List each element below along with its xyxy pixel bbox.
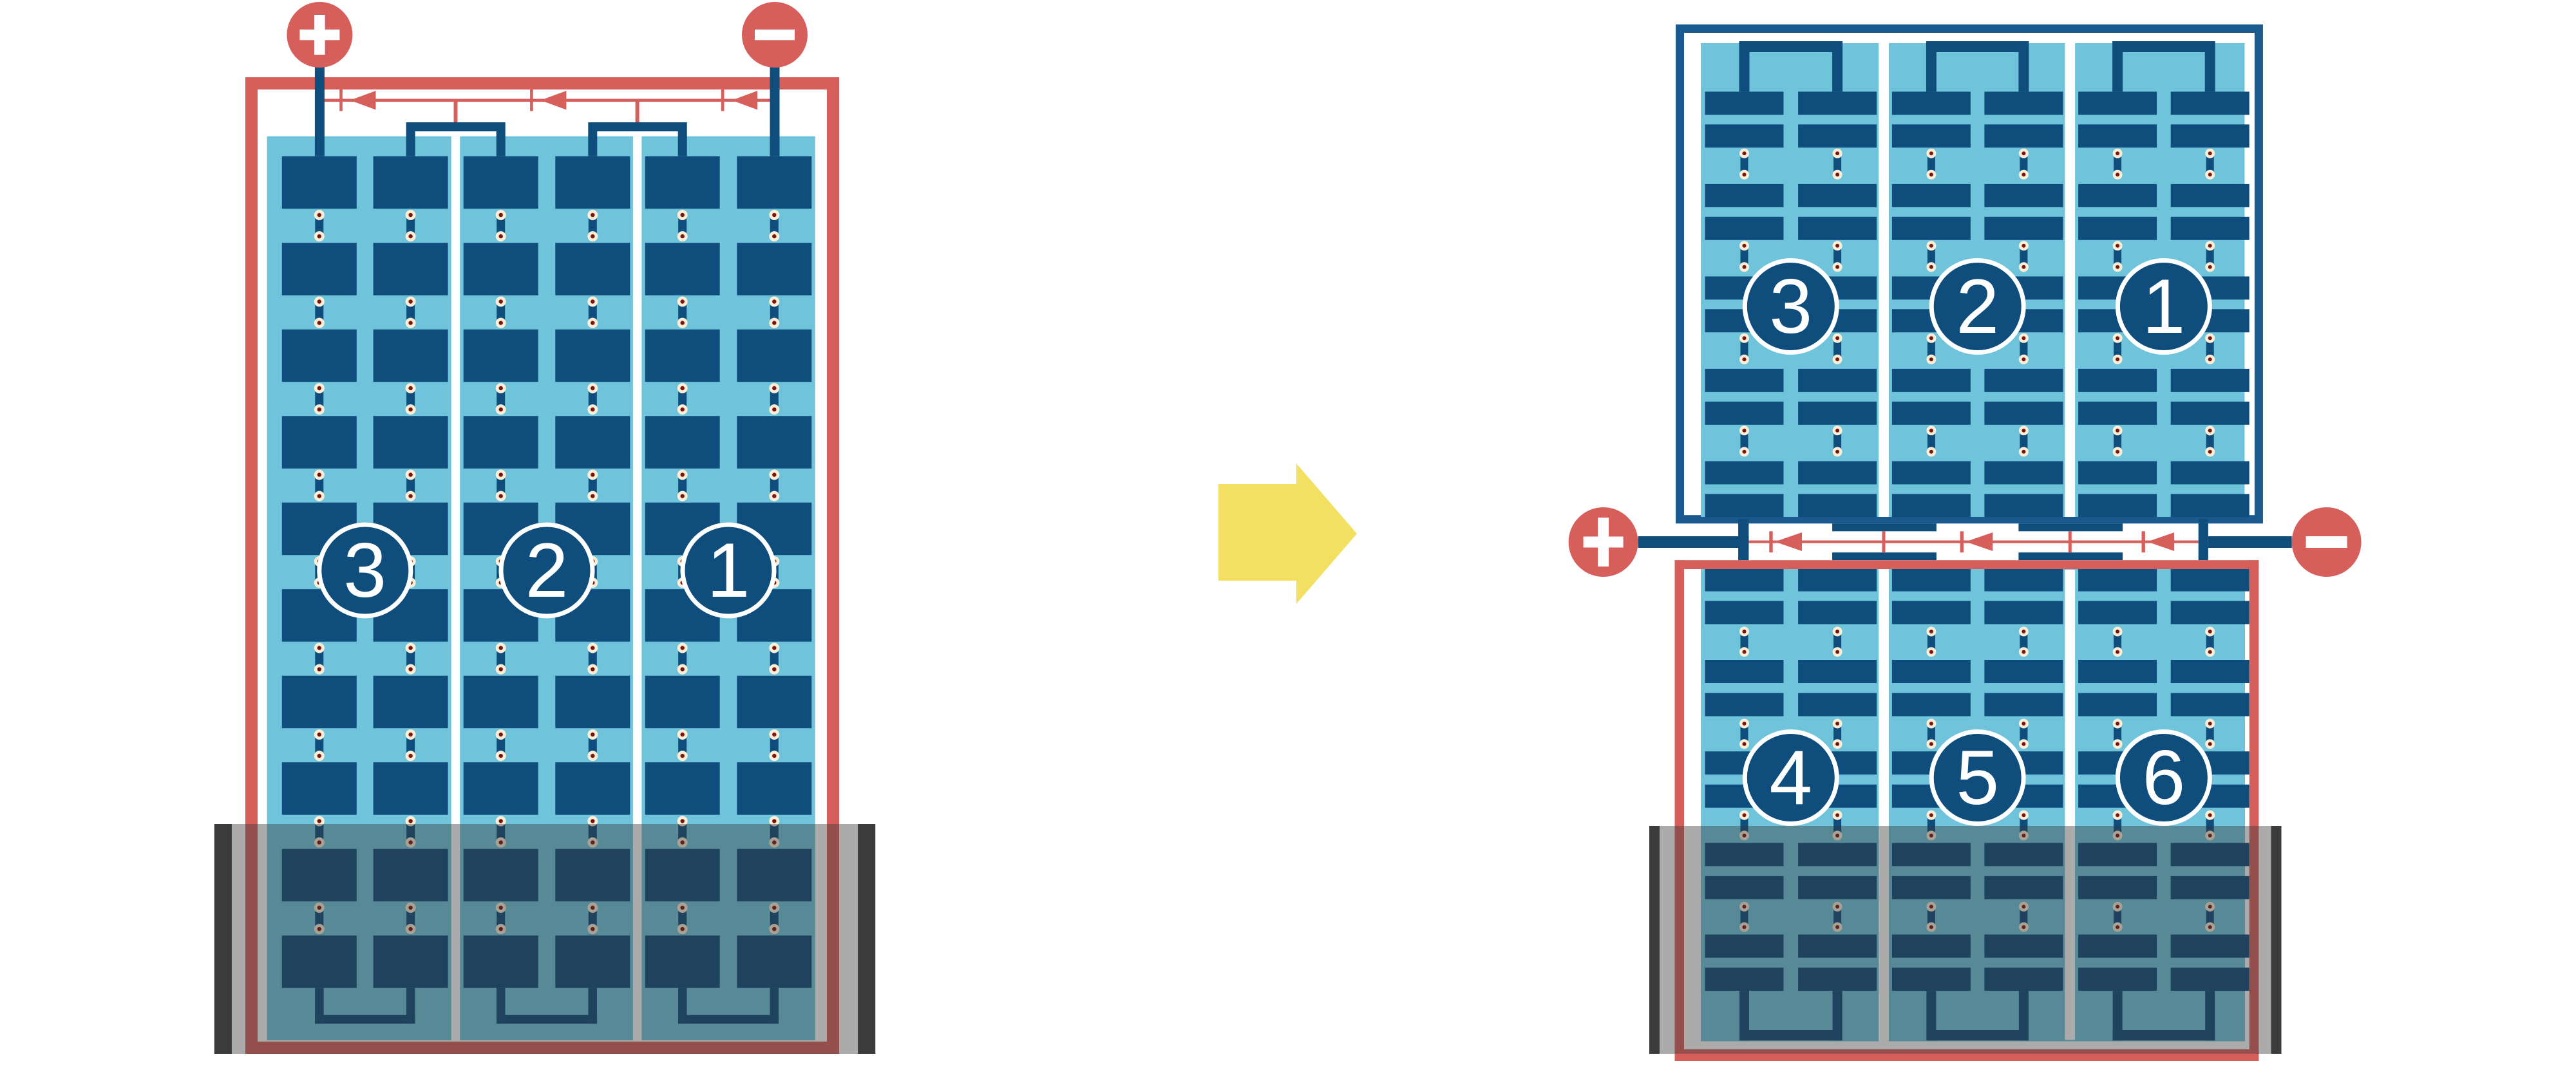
svg-text:4: 4: [1769, 735, 1812, 821]
svg-text:3: 3: [343, 527, 386, 614]
svg-text:1: 1: [2143, 263, 2186, 350]
svg-text:2: 2: [1956, 263, 1999, 350]
svg-text:5: 5: [1956, 735, 1999, 821]
svg-text:2: 2: [526, 527, 569, 614]
svg-text:6: 6: [2143, 735, 2186, 821]
svg-text:1: 1: [707, 527, 750, 614]
svg-text:3: 3: [1769, 263, 1812, 350]
